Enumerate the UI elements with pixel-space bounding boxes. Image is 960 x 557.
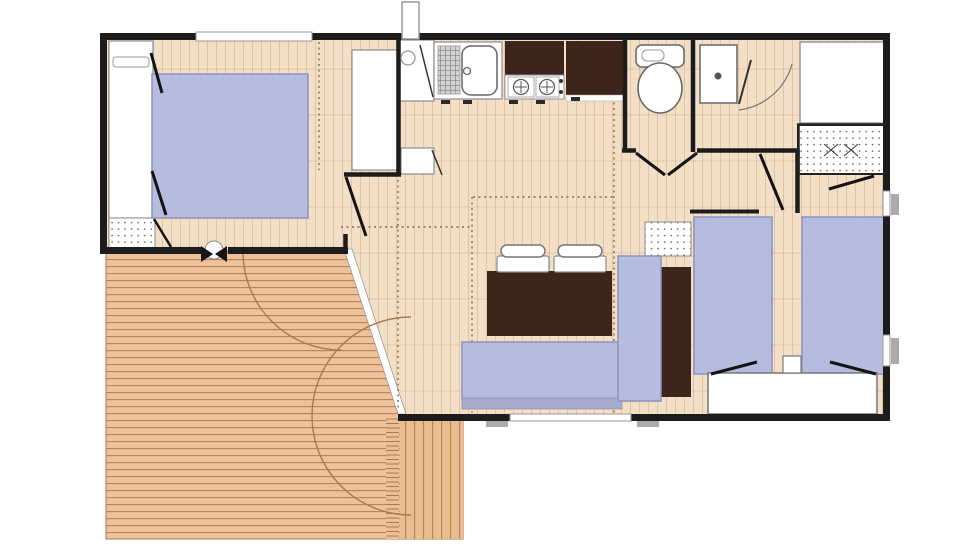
- drainboard: [438, 46, 460, 94]
- desk-bedroom2: [708, 373, 877, 414]
- window-living: [510, 414, 631, 421]
- shower-tray: [798, 125, 886, 174]
- stool-left-seat: [497, 256, 549, 272]
- sill-right-1: [891, 194, 899, 215]
- wardrobe-master-right: [352, 50, 397, 170]
- deck-step-area: [400, 416, 463, 539]
- sill-bottom-1: [486, 421, 508, 427]
- dotted-cabinet-living: [645, 222, 691, 256]
- handle-5: [571, 97, 580, 101]
- sill-bottom-2: [637, 421, 659, 427]
- fridge-dark: [566, 41, 623, 95]
- kitchen-tall-unit: [399, 40, 434, 101]
- handle-4: [536, 100, 545, 104]
- sofa-corner: [618, 256, 661, 401]
- washbasin-faucet: [715, 73, 722, 80]
- window-master-bedroom: [196, 32, 312, 41]
- stool-right-seat: [554, 256, 606, 272]
- wardrobe-master-left: [109, 41, 153, 218]
- handle-2: [463, 100, 472, 104]
- window-right-1: [883, 191, 890, 216]
- stool-right-top: [558, 245, 602, 257]
- floor-plan-svg: [0, 0, 960, 557]
- toilet-cistern-button: [642, 50, 664, 61]
- stool-left-top: [501, 245, 545, 257]
- handle-1: [441, 100, 450, 104]
- kitchen-cupboard-small: [401, 148, 434, 174]
- floor-plan-canvas: [0, 0, 960, 557]
- tv-unit-dark: [661, 267, 691, 397]
- bed-single-right: [802, 217, 884, 374]
- dining-table: [487, 271, 612, 336]
- wardrobe-master-left-shelf: [113, 57, 149, 67]
- stove-knob-1: [559, 79, 563, 83]
- handle-3: [509, 100, 518, 104]
- dotted-chest-master: [109, 218, 155, 248]
- flue-circle: [401, 51, 415, 65]
- chimney-vent: [402, 2, 419, 39]
- sink-bowl: [462, 46, 497, 95]
- sofa-long: [462, 342, 622, 399]
- closet-top-right: [800, 42, 884, 123]
- stove-knob-2: [559, 90, 563, 94]
- upper-cabinet-dark: [505, 41, 564, 75]
- sill-right-2: [891, 338, 899, 364]
- bed-double: [152, 74, 308, 218]
- window-right-2: [883, 335, 890, 366]
- bed-single-left: [694, 217, 772, 374]
- nightstand-bedroom2: [783, 356, 801, 373]
- toilet-bowl: [638, 63, 682, 113]
- deck-ladder-strip: [386, 418, 399, 539]
- sofa-front-strip: [462, 398, 622, 409]
